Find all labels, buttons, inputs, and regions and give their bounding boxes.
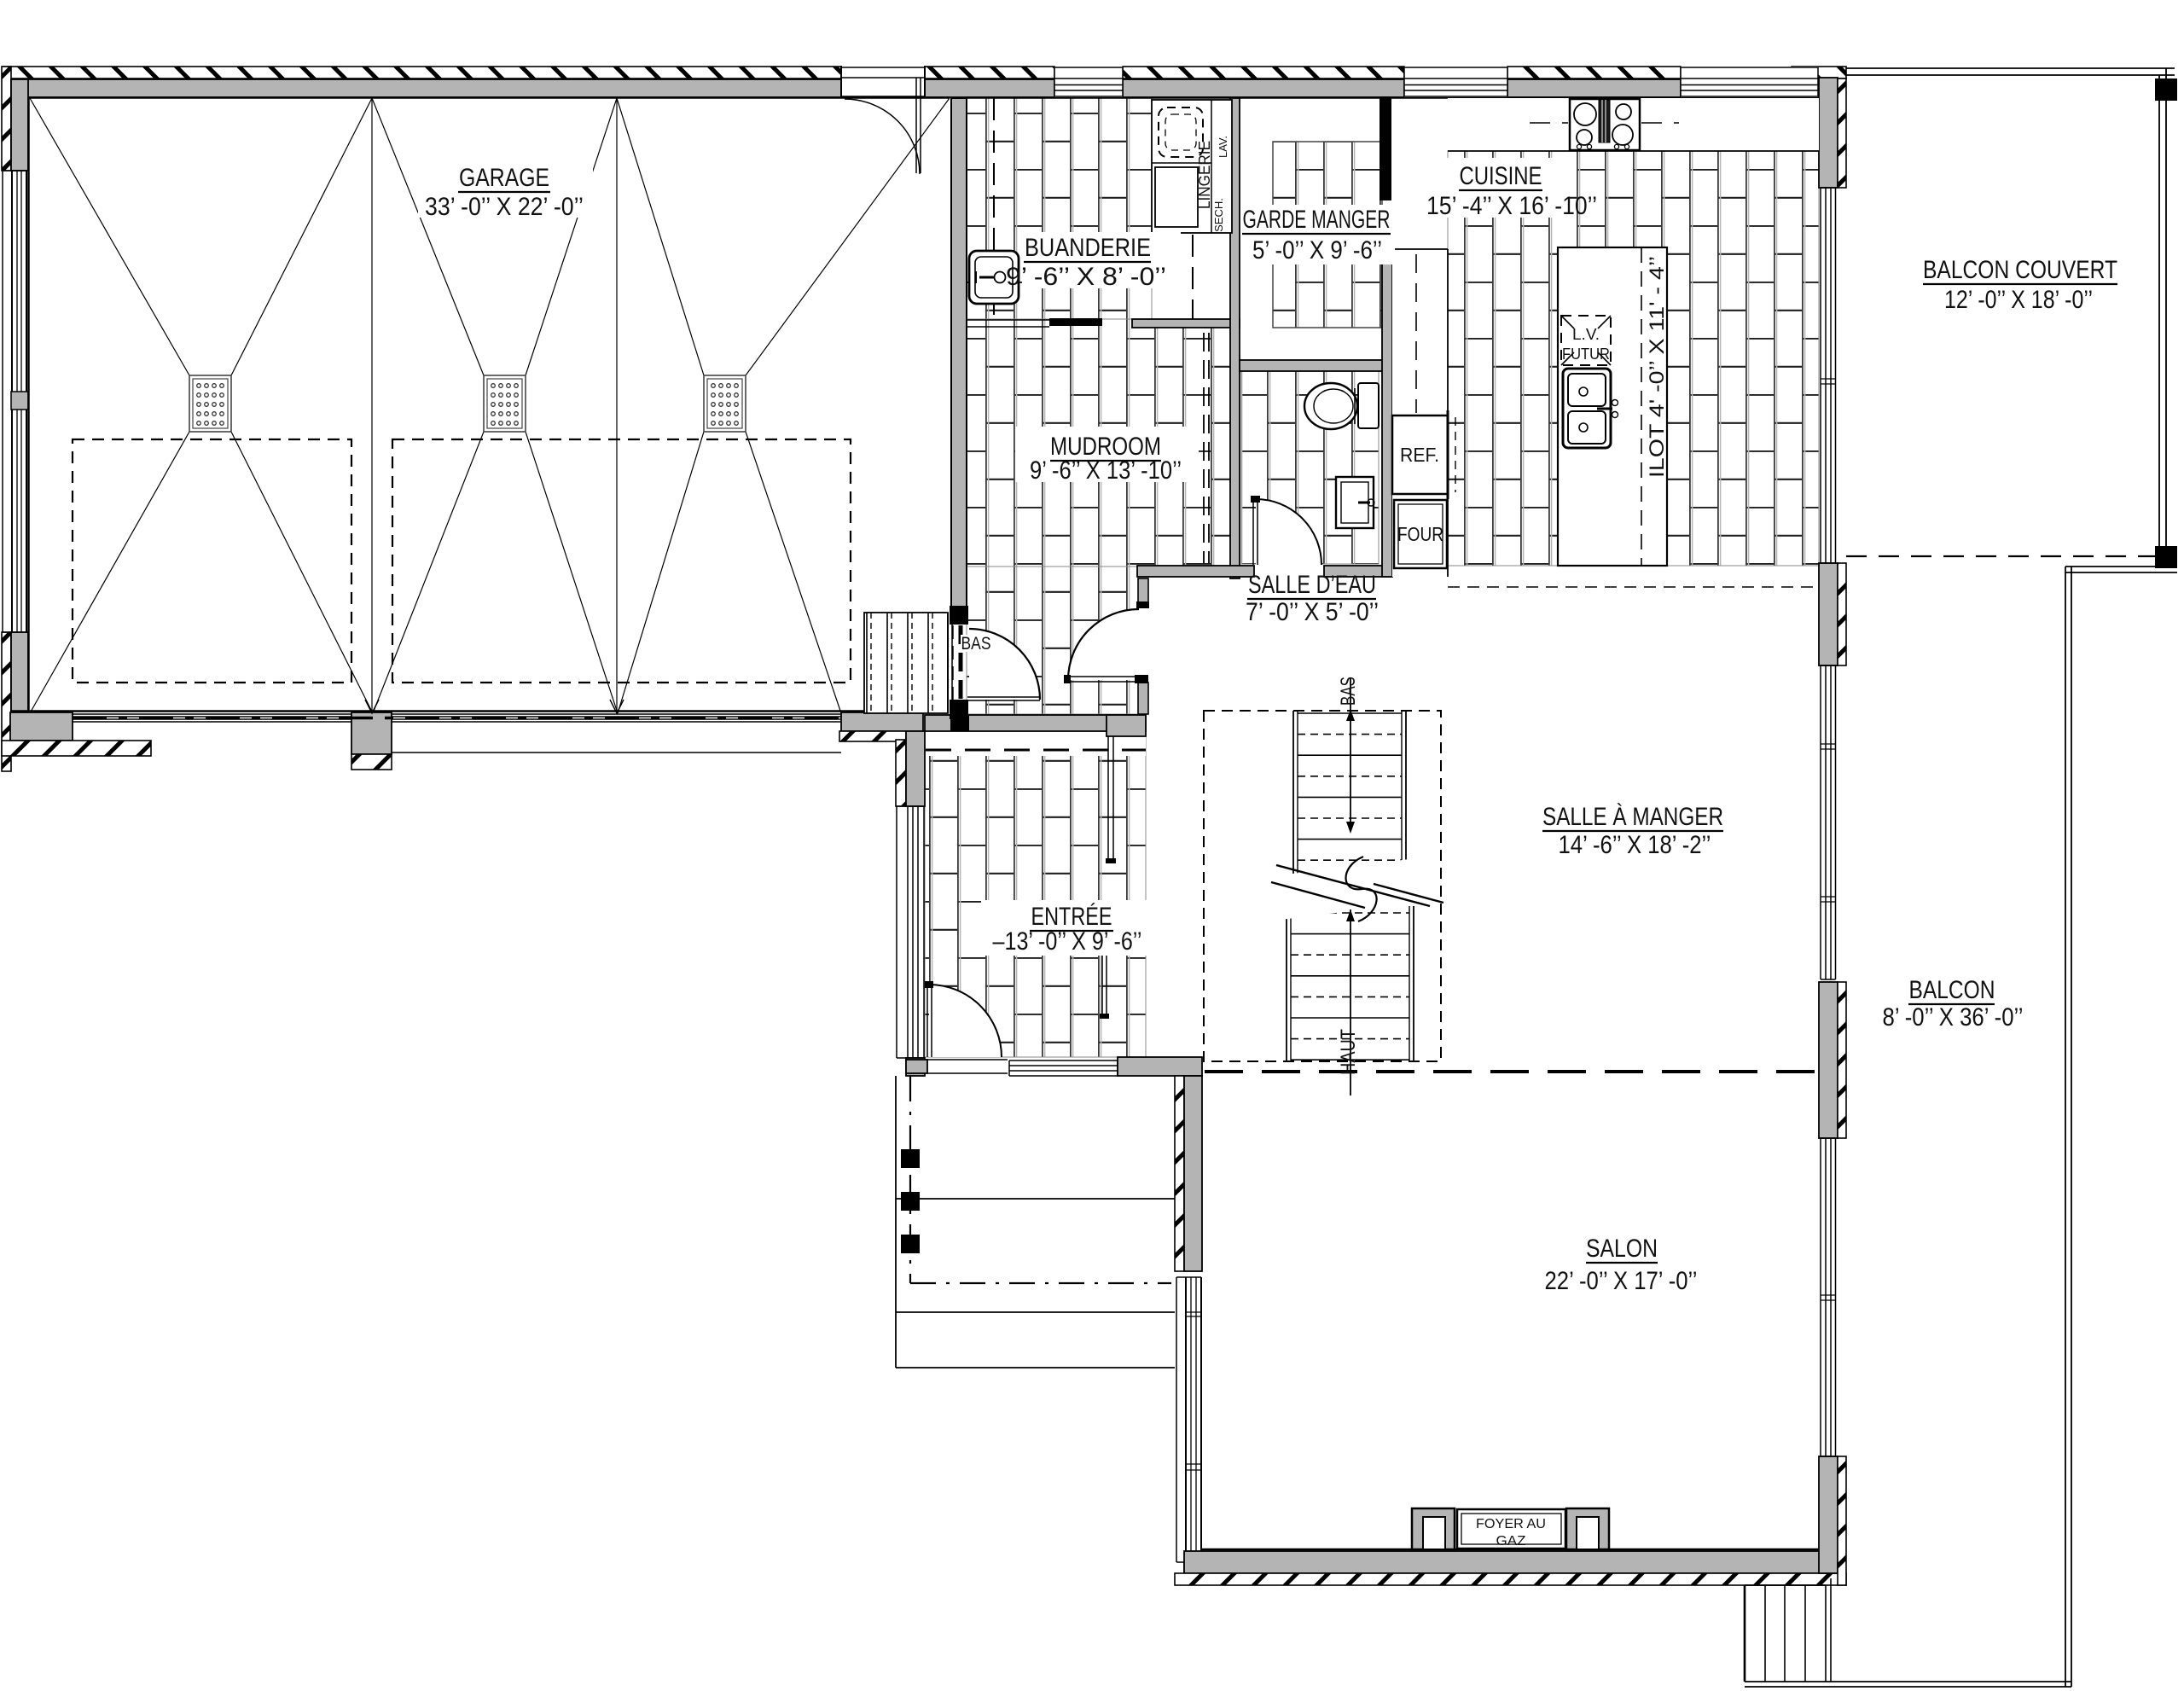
svg-text:GARAGE: GARAGE [459,164,549,192]
svg-text:L.V.: L.V. [1572,326,1600,343]
svg-text:33’ -0’’ X 22’ -0’’: 33’ -0’’ X 22’ -0’’ [425,193,584,221]
svg-text:LAV.: LAV. [1217,136,1229,158]
svg-text:BAS: BAS [961,634,991,654]
svg-text:SALON: SALON [1586,1235,1658,1263]
svg-text:LINGERIE: LINGERIE [1196,141,1213,209]
svg-text:7’ -0’’ X 5’ -0’’: 7’ -0’’ X 5’ -0’’ [1246,598,1379,626]
svg-text:–13’ -0’’ X 9’ -6’’: –13’ -0’’ X 9’ -6’’ [993,927,1142,956]
svg-text:REF.: REF. [1400,444,1439,466]
svg-text:8’ -0’’ X 36’ -0’’: 8’ -0’’ X 36’ -0’’ [1883,1003,2024,1031]
svg-text:SALLE À MANGER: SALLE À MANGER [1542,803,1723,831]
svg-text:BAS: BAS [1337,677,1360,706]
svg-text:5’ -0’’ X 9’ -6’’: 5’ -0’’ X 9’ -6’’ [1252,236,1382,264]
svg-text:BALCON: BALCON [1909,976,1995,1004]
svg-text:FOUR: FOUR [1397,523,1443,545]
svg-text:GARDE MANGER: GARDE MANGER [1243,206,1391,234]
svg-text:FUTUR: FUTUR [1562,346,1610,363]
svg-text:SECH.: SECH. [1212,198,1225,232]
svg-text:BUANDERIE: BUANDERIE [1025,234,1151,262]
svg-text:BALCON COUVERT: BALCON COUVERT [1923,256,2117,284]
svg-text:FOYER AU: FOYER AU [1476,1517,1546,1531]
svg-text:9’ -6’’ X 13’ -10’’: 9’ -6’’ X 13’ -10’’ [1030,456,1182,485]
svg-text:15’ -4’’ X 16’ -10’’: 15’ -4’’ X 16’ -10’’ [1426,192,1597,220]
svg-text:14’ -6’’ X 18’ -2’’: 14’ -6’’ X 18’ -2’’ [1559,831,1711,859]
svg-text:HAUT: HAUT [1337,1029,1360,1075]
svg-text:9’ -6’’ X 8’ -0’’: 9’ -6’’ X 8’ -0’’ [1006,263,1166,291]
svg-text:12’ -0’’ X 18’ -0’’: 12’ -0’’ X 18’ -0’’ [1944,286,2093,314]
svg-text:SALLE D’EAU: SALLE D’EAU [1248,571,1376,599]
svg-text:CUISINE: CUISINE [1460,162,1542,190]
svg-text:GAZ: GAZ [1496,1534,1526,1549]
svg-text:ILOT 4' -0’’ X 11' - 4’’: ILOT 4' -0’’ X 11' - 4’’ [1646,256,1669,478]
svg-text:22’ -0’’ X 17’ -0’’: 22’ -0’’ X 17’ -0’’ [1545,1267,1698,1295]
